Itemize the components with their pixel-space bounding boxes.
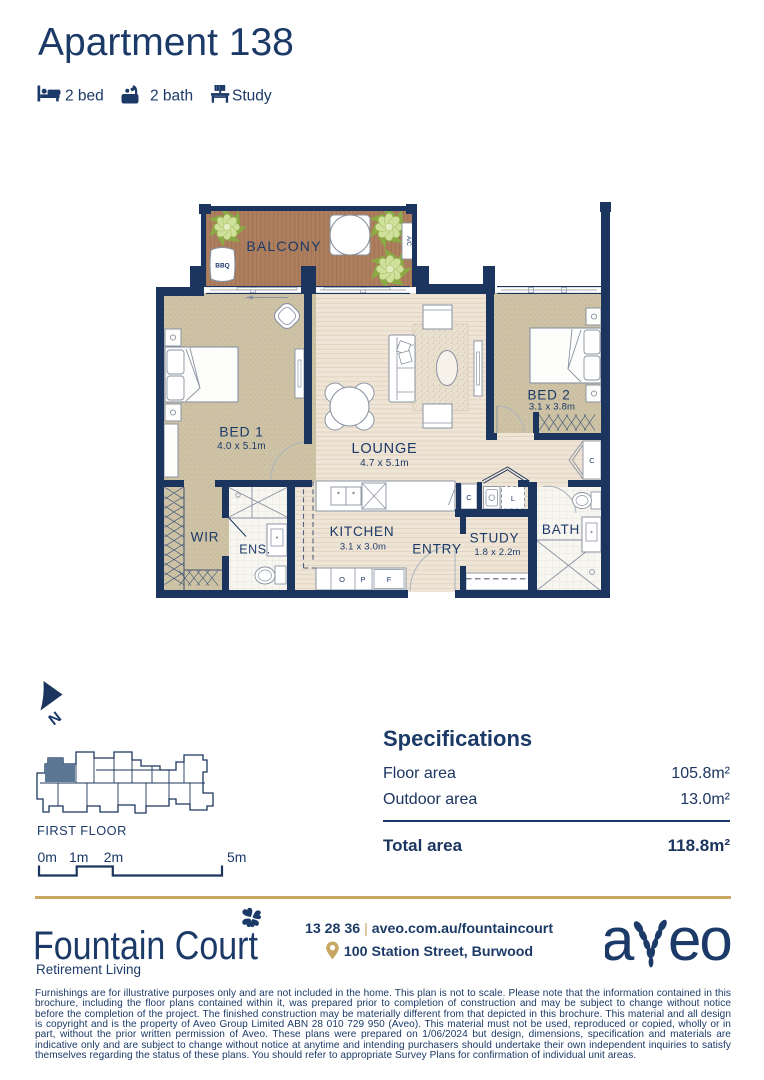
svg-text:L: L <box>511 494 515 503</box>
svg-text:O: O <box>339 575 345 584</box>
svg-text:2m: 2m <box>104 849 123 865</box>
svg-text:LOUNGE: LOUNGE <box>351 441 417 457</box>
svg-text:4.7 x 5.1m: 4.7 x 5.1m <box>360 458 409 469</box>
svg-text:A/C: A/C <box>405 236 411 247</box>
svg-text:0m: 0m <box>38 849 57 865</box>
svg-text:WIR: WIR <box>191 530 220 545</box>
svg-text:KITCHEN: KITCHEN <box>330 524 395 539</box>
svg-text:BALCONY: BALCONY <box>246 238 321 254</box>
svg-text:BED 2: BED 2 <box>527 388 570 403</box>
svg-text:3.1 x 3.0m: 3.1 x 3.0m <box>340 542 386 553</box>
svg-text:4.0 x 5.1m: 4.0 x 5.1m <box>217 441 266 452</box>
svg-text:BATH: BATH <box>542 522 580 537</box>
svg-text:ENTRY: ENTRY <box>412 542 462 557</box>
svg-text:a: a <box>605 911 635 973</box>
svg-text:C: C <box>466 493 472 502</box>
svg-text:eo: eo <box>668 911 731 973</box>
svg-text:3.1 x 3.8m: 3.1 x 3.8m <box>529 402 575 413</box>
svg-text:5m: 5m <box>227 849 246 865</box>
svg-text:F: F <box>387 575 392 584</box>
svg-text:FIRST FLOOR: FIRST FLOOR <box>37 823 127 838</box>
svg-text:C: C <box>589 456 595 465</box>
svg-text:1.8 x 2.2m: 1.8 x 2.2m <box>474 547 520 558</box>
svg-text:BBQ: BBQ <box>215 263 229 270</box>
svg-text:N: N <box>46 709 65 729</box>
svg-text:BED 1: BED 1 <box>219 424 263 440</box>
svg-text:ENS.: ENS. <box>239 543 271 557</box>
svg-text:1m: 1m <box>69 849 88 865</box>
svg-text:P: P <box>360 575 365 584</box>
svg-text:STUDY: STUDY <box>470 531 520 546</box>
